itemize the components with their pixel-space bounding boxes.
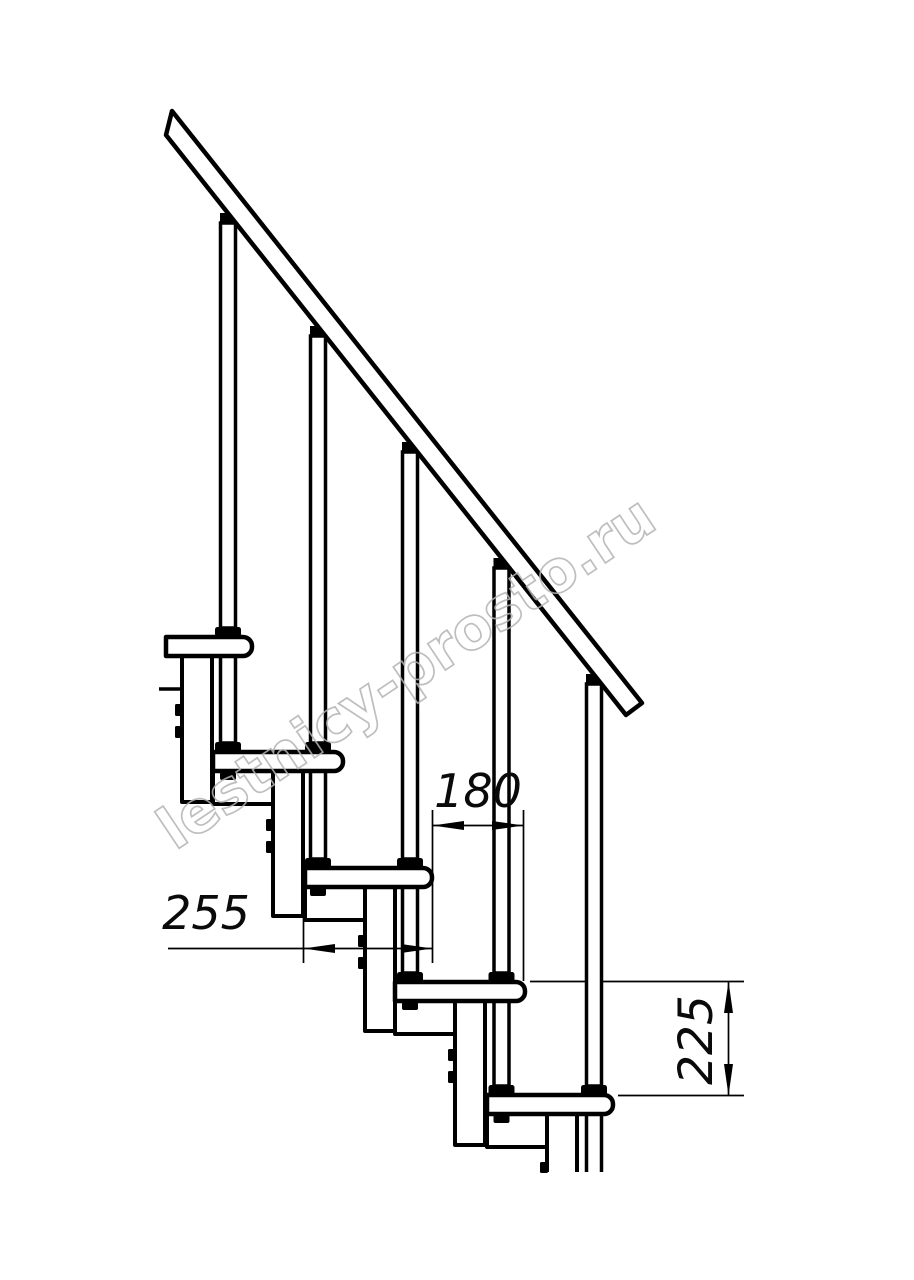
tread-3 [305,868,432,887]
arrow-up-icon [724,982,733,1014]
bolt-icon [266,841,274,853]
bolt-icon [448,1071,456,1083]
arrow-left-icon [304,944,336,953]
baluster-5 [587,684,602,1086]
baluster-3-lower-rod [403,887,418,973]
arrow-down-icon [724,1064,733,1096]
tread-1 [166,637,252,656]
dimension-rise: 225 [669,982,733,1096]
tread-4 [395,982,525,1001]
staircase-drawing: 180 255 225 lestnicy-prosto.ru [0,0,914,1280]
nut-icon [494,1115,510,1123]
washer-icon [305,858,331,868]
drawing-sheet: 180 255 225 lestnicy-prosto.ru [0,0,914,1280]
bolt-icon [175,704,183,716]
nut-icon [310,888,326,896]
bolt-icon [358,957,366,969]
washer-icon [397,972,423,982]
module-3-column [365,887,395,1031]
dimension-rise-value: 225 [669,995,724,1085]
bolt-icon [358,935,366,947]
bolt-icon [175,726,183,738]
baluster-4-lower-rod [494,1001,509,1086]
module-4-column [455,1001,485,1145]
baluster-2-lower-rod [311,771,326,859]
baluster-2 [311,336,326,743]
tread-5 [487,1095,613,1114]
nut-icon [402,1002,418,1010]
dimension-run-value: 180 [434,764,522,818]
baluster-1 [221,223,236,628]
baluster-1-lower-rod [221,656,236,743]
dimension-depth-value: 255 [162,886,250,940]
bolt-icon [540,1162,548,1173]
arrow-left-icon [433,821,465,830]
bolt-icon [266,819,274,831]
washer-icon [489,1085,515,1095]
bolt-icon [448,1049,456,1061]
